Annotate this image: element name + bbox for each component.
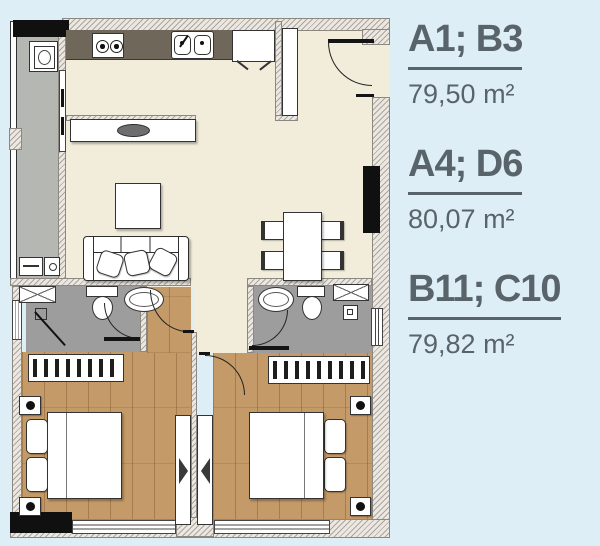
nightstand-lamp-icon [350,497,371,516]
balcony-railing [10,21,17,285]
bed-pillow-icon [26,419,48,454]
nightstand-lamp-icon [19,396,41,415]
chair-icon [261,221,284,240]
column-right-middle [363,166,380,233]
shower-tray-icon [19,286,56,303]
sofa-pillow-icon [123,249,151,277]
chair-icon [321,251,344,270]
balcony-railing-post [9,128,22,150]
nightstand-lamp-icon [350,396,371,415]
shower-head-icon [343,305,358,320]
wall-balcony-inner [58,21,66,285]
bedroom2-door-stop [199,352,210,355]
shower-tray-icon [333,284,369,301]
unit-area: 79,50 m² [408,81,596,108]
window-bedroom1-icon [72,520,176,534]
bed-icon [47,412,122,499]
unit-entry: A4; D6 80,07 m² [408,145,596,233]
entry-door-stop [356,94,374,97]
window-bathroom2-icon [371,308,383,346]
stove-icon [92,33,124,58]
washbasin-icon [258,287,294,312]
balcony-sliding-door-icon [59,70,66,152]
tv-unit-icon [197,415,213,525]
bedroom1-door-stop [183,330,194,333]
unit-code: A4; D6 [408,145,522,195]
unit-area: 80,07 m² [408,206,596,233]
washing-machine-icon [29,41,58,72]
fridge-icon [232,30,275,62]
unit-area: 79,82 m² [408,331,596,358]
bathroom2-door-leaf [249,346,289,350]
nightstand-lamp-icon [19,497,41,516]
bed-pillow-icon [324,457,346,492]
chair-icon [261,251,284,270]
bathroom1-door-leaf [104,337,140,341]
entry-threshold [372,45,390,98]
unit-entry: B11; C10 79,82 m² [408,270,596,358]
wardrobe-icon [28,354,124,382]
bed-pillow-icon [26,457,48,492]
tv-unit-icon [175,415,191,525]
window-bedroom2-icon [214,520,330,534]
utility-unit-icon [19,257,43,276]
chair-icon [321,221,344,240]
unit-entry: A1; B3 79,50 m² [408,20,596,108]
entry-closet [282,28,298,116]
dining-table-icon [283,212,322,281]
wall-entry-closet [275,21,282,121]
utility-unit-icon [44,257,60,276]
unit-code: B11; C10 [408,270,561,320]
bed-icon [249,412,324,499]
floorplan-page: { "legend": { "units": [ { "code": "A1; … [0,0,600,546]
wardrobe-icon [268,356,370,384]
bed-pillow-icon [324,419,346,454]
unit-code: A1; B3 [408,20,522,70]
coffee-table-icon [115,183,161,229]
unit-legend: A1; B3 79,50 m² A4; D6 80,07 m² B11; C10… [408,20,596,395]
window-bedroom1-side-icon [12,300,22,340]
column-top-left [13,20,69,37]
kitchen-sink-icon [171,31,214,59]
corridor-floor [193,287,247,355]
kitchen-island-icon [70,119,196,142]
